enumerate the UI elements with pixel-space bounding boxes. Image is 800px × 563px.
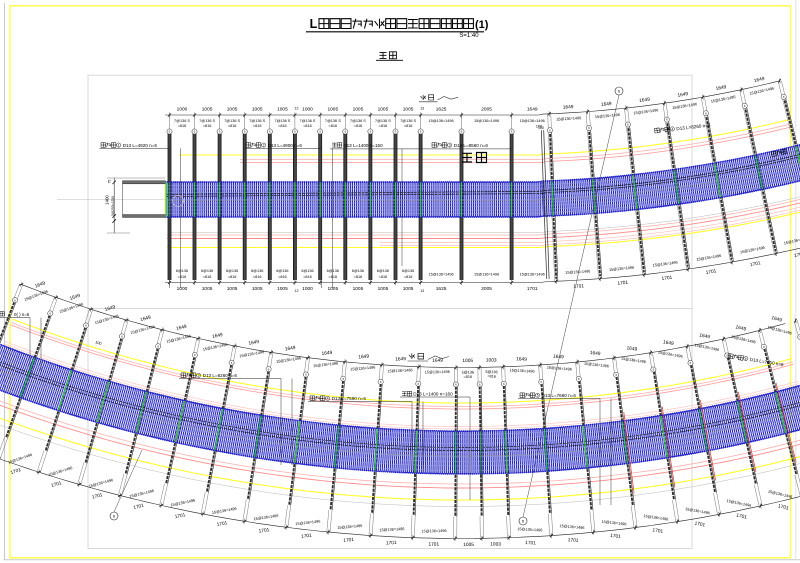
svg-text:5: 5 <box>537 394 539 398</box>
svg-text:=816: =816 <box>228 124 237 128</box>
svg-text:15@136=1496: 15@136=1496 <box>520 119 545 123</box>
svg-text:1005: 1005 <box>227 286 238 292</box>
svg-text:=816: =816 <box>404 275 413 279</box>
svg-text:D13 L=7590 n=6: D13 L=7590 n=6 <box>332 396 367 401</box>
svg-text:15@136=1496: 15@136=1496 <box>429 273 454 277</box>
svg-text:=816: =816 <box>203 275 212 279</box>
svg-text:=816: =816 <box>253 124 262 128</box>
svg-text:=816: =816 <box>329 124 338 128</box>
svg-text:5@250=1250: 5@250=1250 <box>111 196 115 216</box>
svg-text:=816: =816 <box>329 275 338 279</box>
svg-text:7@136 S: 7@136 S <box>375 119 391 123</box>
svg-text:1005: 1005 <box>202 286 213 292</box>
svg-text:3: 3 <box>198 374 200 378</box>
svg-text:1005: 1005 <box>202 107 213 113</box>
svg-text:1: 1 <box>118 143 120 147</box>
svg-text:1400: 1400 <box>105 195 110 205</box>
svg-text:D13 L=4900 n=6: D13 L=4900 n=6 <box>268 143 303 148</box>
svg-text:15@136=1496: 15@136=1496 <box>422 529 447 534</box>
svg-text:1000: 1000 <box>302 107 313 113</box>
svg-text:1005: 1005 <box>277 286 288 292</box>
svg-text:13: 13 <box>420 107 424 111</box>
svg-text:D13 L=4920 n=6: D13 L=4920 n=6 <box>123 143 158 148</box>
svg-text:6@136: 6@136 <box>176 269 188 273</box>
svg-text:=816: =816 <box>354 124 363 128</box>
svg-text:1649: 1649 <box>358 354 369 361</box>
svg-text:1003: 1003 <box>490 541 501 547</box>
svg-text:D13 L=1400 n=160: D13 L=1400 n=160 <box>413 392 453 397</box>
svg-text:=816: =816 <box>303 124 312 128</box>
svg-text:1005: 1005 <box>378 286 389 292</box>
svg-text:7@136 S: 7@136 S <box>249 119 265 123</box>
svg-text:1005: 1005 <box>277 107 288 113</box>
svg-text:12: 12 <box>295 107 299 111</box>
svg-text:D13 L=7660 n=6: D13 L=7660 n=6 <box>542 393 577 398</box>
svg-text:1005: 1005 <box>327 107 338 113</box>
svg-text:7@136 S: 7@136 S <box>224 119 240 123</box>
svg-text:1005: 1005 <box>462 358 473 364</box>
svg-text:=816: =816 <box>354 275 363 279</box>
svg-text:=816: =816 <box>228 275 237 279</box>
svg-text:1625: 1625 <box>436 286 447 292</box>
svg-text:=816: =816 <box>178 124 187 128</box>
svg-text:2005: 2005 <box>481 107 492 113</box>
svg-text:1005: 1005 <box>252 286 263 292</box>
svg-text:4: 4 <box>327 397 329 401</box>
svg-text:1003: 1003 <box>486 357 497 363</box>
svg-text:=816: =816 <box>464 375 473 379</box>
svg-text:1701: 1701 <box>527 286 538 292</box>
svg-text:1701: 1701 <box>568 537 579 544</box>
svg-text:1625: 1625 <box>436 107 447 113</box>
svg-text:1005: 1005 <box>463 542 474 548</box>
svg-text:1005: 1005 <box>378 107 389 113</box>
svg-text:6@136: 6@136 <box>201 269 213 273</box>
svg-text:15@136=1496: 15@136=1496 <box>474 273 499 277</box>
svg-text:7@136 S: 7@136 S <box>274 119 290 123</box>
svg-text:13: 13 <box>420 289 424 293</box>
svg-text:7@136 S: 7@136 S <box>300 119 316 123</box>
svg-text:=816: =816 <box>379 124 388 128</box>
svg-text:6@136: 6@136 <box>402 269 414 273</box>
svg-text:1649: 1649 <box>395 356 406 363</box>
svg-text:2: 2 <box>263 143 265 147</box>
svg-text:1005: 1005 <box>252 107 263 113</box>
svg-text:1005: 1005 <box>227 107 238 113</box>
svg-text:12: 12 <box>295 289 299 293</box>
svg-text:75: 75 <box>108 180 112 184</box>
svg-text:1701: 1701 <box>386 540 397 547</box>
svg-text:=816: =816 <box>278 275 287 279</box>
svg-text:D13 L=8260 n=6: D13 L=8260 n=6 <box>203 373 238 378</box>
svg-text:6@136: 6@136 <box>352 269 364 273</box>
svg-text:1649: 1649 <box>527 107 538 113</box>
svg-text:15@136=1496: 15@136=1496 <box>474 119 499 123</box>
svg-text:=816: =816 <box>278 124 287 128</box>
svg-text:1649: 1649 <box>321 350 333 357</box>
svg-text:1000: 1000 <box>302 286 313 292</box>
svg-text:6@136: 6@136 <box>377 269 389 273</box>
svg-text:6@136: 6@136 <box>251 269 263 273</box>
svg-text:100: 100 <box>538 126 544 130</box>
svg-text:=816: =816 <box>379 275 388 279</box>
svg-text:1649: 1649 <box>563 104 574 111</box>
svg-text:3: 3 <box>449 143 451 147</box>
svg-text:15@136=1496: 15@136=1496 <box>425 370 450 375</box>
svg-text:1005: 1005 <box>353 286 364 292</box>
svg-text:2005: 2005 <box>481 286 492 292</box>
svg-text:=816: =816 <box>178 275 187 279</box>
svg-text:=816: =816 <box>253 275 262 279</box>
svg-text:1005: 1005 <box>403 107 414 113</box>
svg-text:1005: 1005 <box>403 286 414 292</box>
svg-text:0( ) n=6: 0( ) n=6 <box>14 312 30 317</box>
svg-text:7@136 S: 7@136 S <box>350 119 366 123</box>
svg-text:1000: 1000 <box>177 107 188 113</box>
svg-text:6@136: 6@136 <box>276 269 288 273</box>
svg-text:(1): (1) <box>475 19 489 31</box>
svg-text:1701: 1701 <box>301 533 313 540</box>
svg-text:1649: 1649 <box>589 350 601 357</box>
svg-text:S=1:40: S=1:40 <box>459 33 479 39</box>
svg-text:1701: 1701 <box>343 537 354 544</box>
svg-text:7@136 S: 7@136 S <box>325 119 341 123</box>
svg-text:7@136 S: 7@136 S <box>400 119 416 123</box>
svg-text:1701: 1701 <box>428 542 439 548</box>
svg-text:L: L <box>310 17 318 31</box>
svg-text:1649: 1649 <box>601 101 613 108</box>
svg-text:=816: =816 <box>203 124 212 128</box>
svg-text:5@136: 5@136 <box>462 370 474 374</box>
svg-text:1005: 1005 <box>353 107 364 113</box>
svg-text:6@136: 6@136 <box>327 269 339 273</box>
svg-text:1005: 1005 <box>327 286 338 292</box>
svg-text:7@136 S: 7@136 S <box>199 119 215 123</box>
svg-text:1701: 1701 <box>525 540 536 547</box>
svg-text:7@136 S: 7@136 S <box>174 119 190 123</box>
svg-text:=816: =816 <box>487 374 496 378</box>
svg-text:=816: =816 <box>404 124 413 128</box>
svg-text:6@136: 6@136 <box>301 269 313 273</box>
svg-text:15@136=1496: 15@136=1496 <box>429 119 454 123</box>
svg-text:6@136: 6@136 <box>226 269 238 273</box>
svg-text:1649: 1649 <box>516 356 527 363</box>
svg-text:=816: =816 <box>303 275 312 279</box>
svg-text:15@136=1496: 15@136=1496 <box>520 273 545 277</box>
svg-text:1701: 1701 <box>617 280 629 287</box>
svg-text:1701: 1701 <box>610 533 622 540</box>
svg-text:1000: 1000 <box>177 286 188 292</box>
svg-text:D13 L=8560 n=6: D13 L=8560 n=6 <box>454 143 489 148</box>
svg-text:D13 L=1400 n=150: D13 L=1400 n=150 <box>343 143 383 148</box>
svg-text:1649: 1649 <box>553 354 564 361</box>
